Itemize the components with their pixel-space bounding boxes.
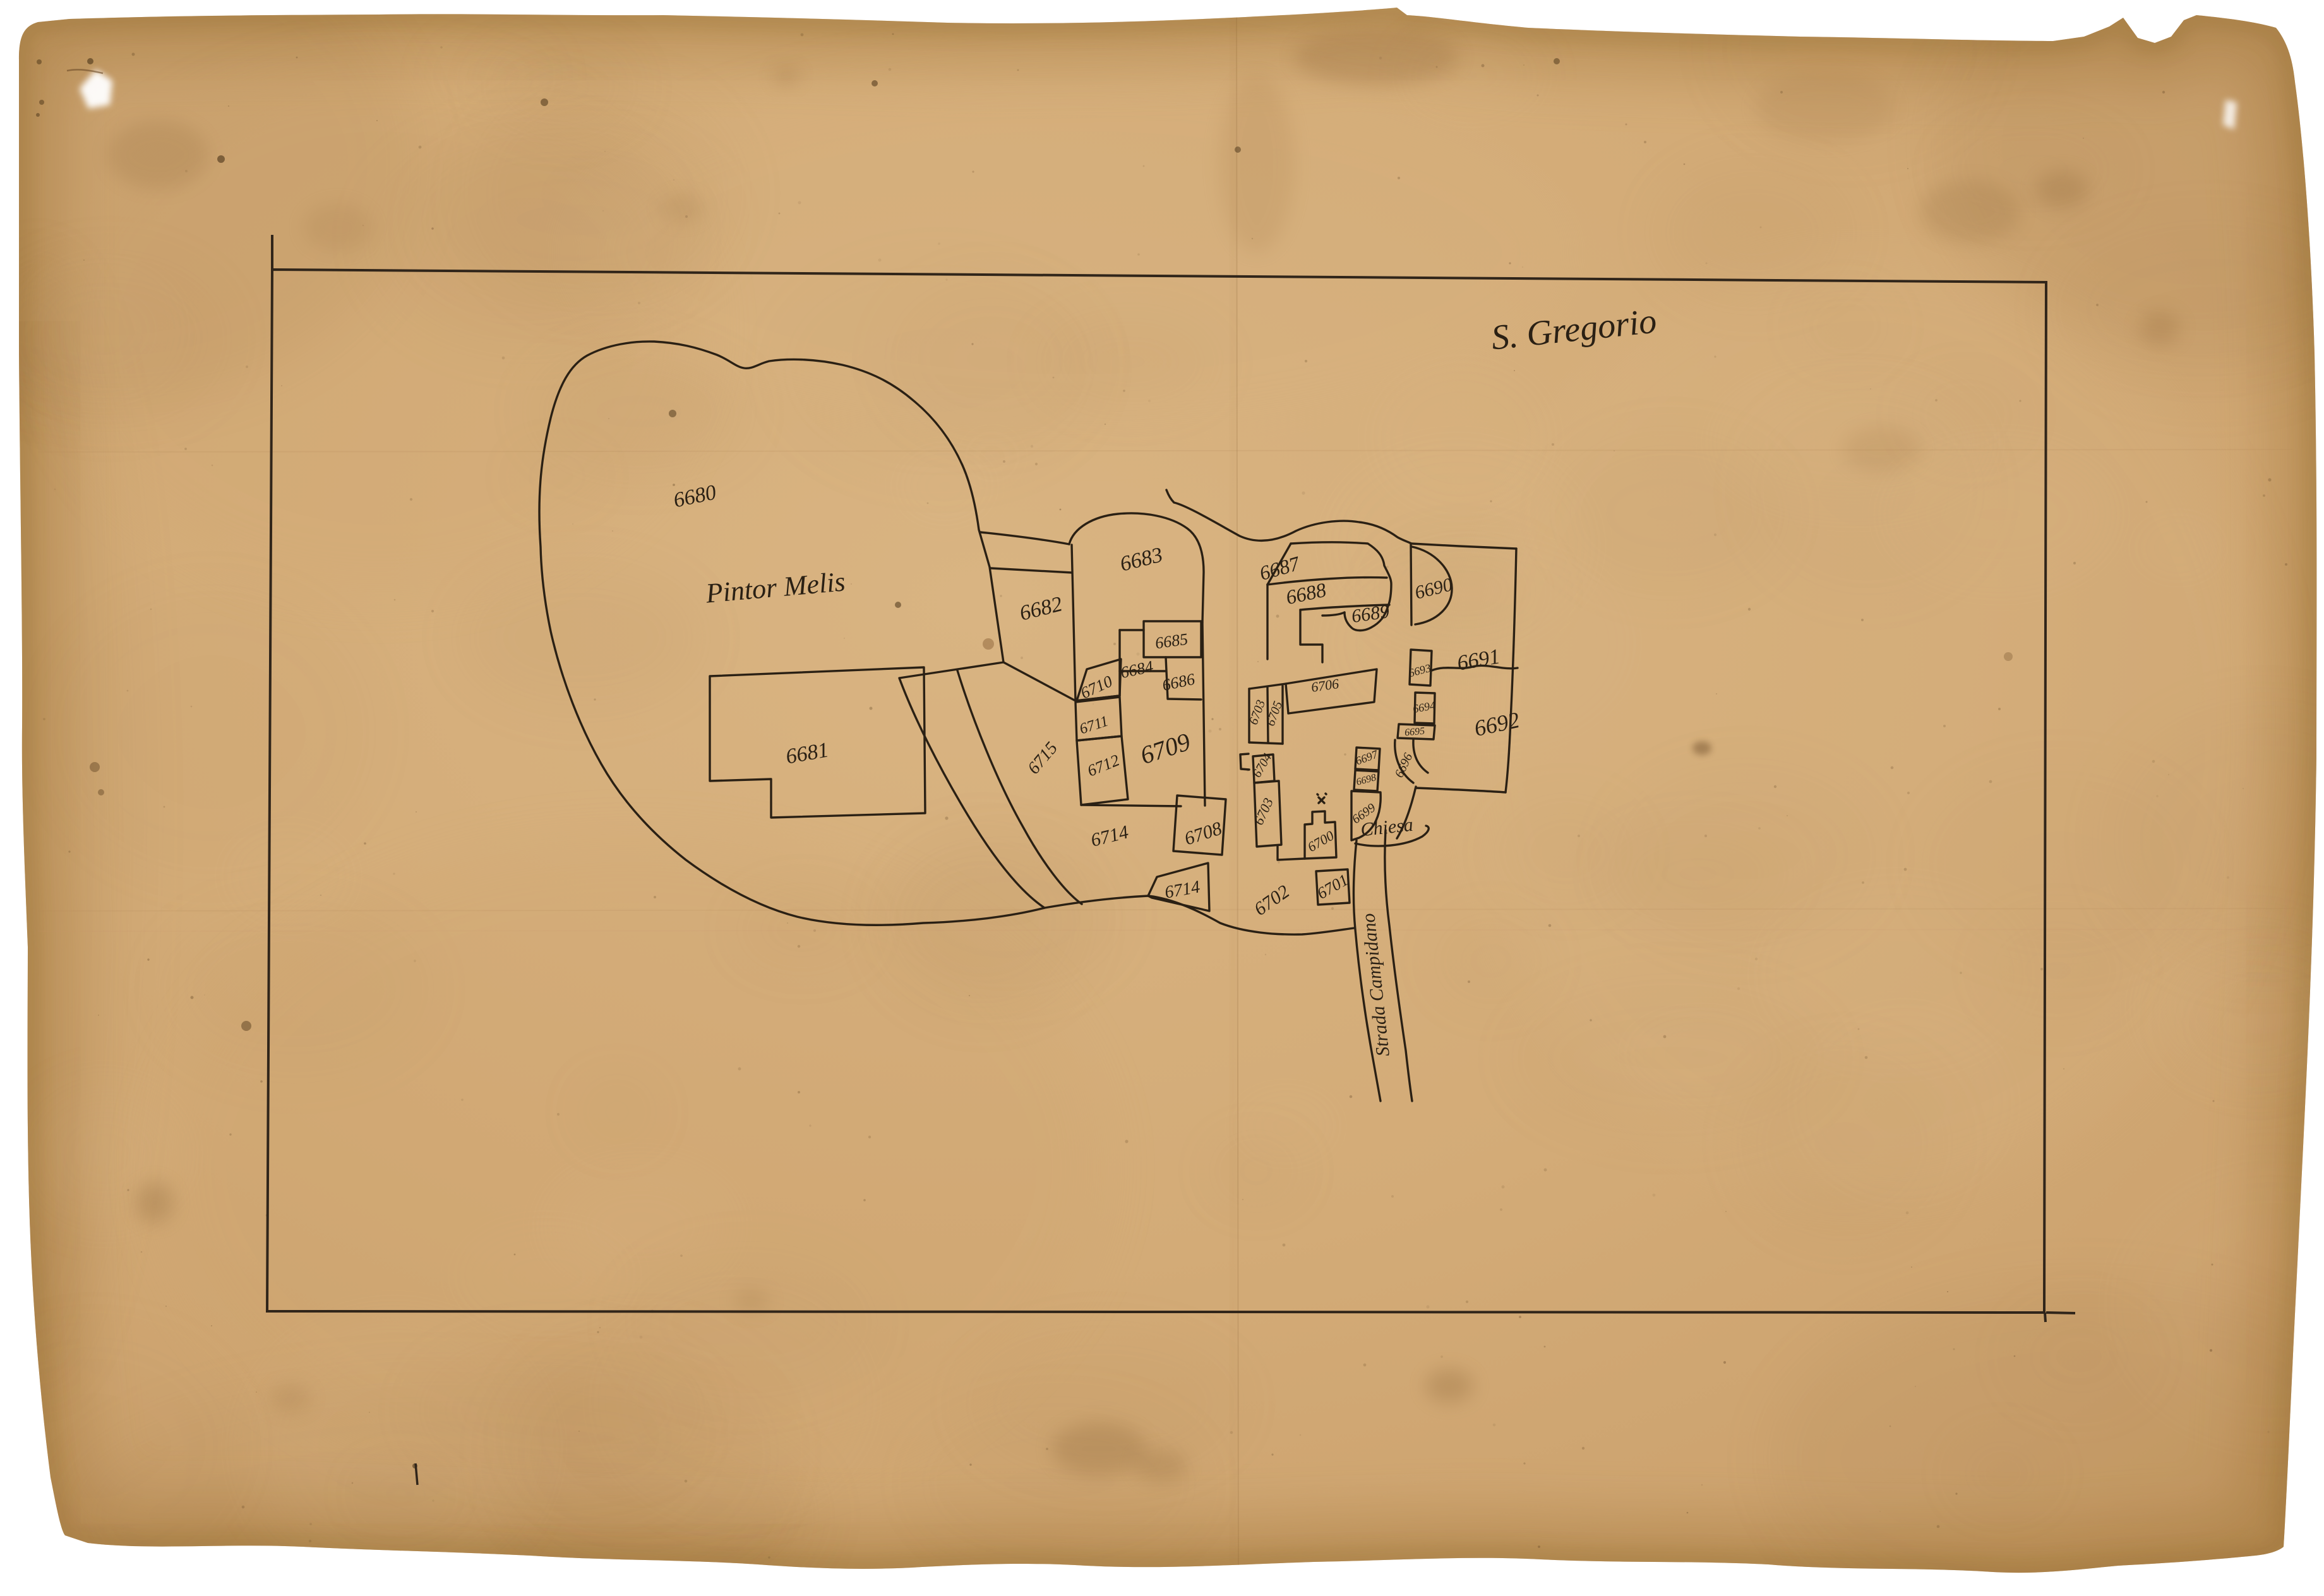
svg-text:6695: 6695: [1404, 726, 1425, 739]
